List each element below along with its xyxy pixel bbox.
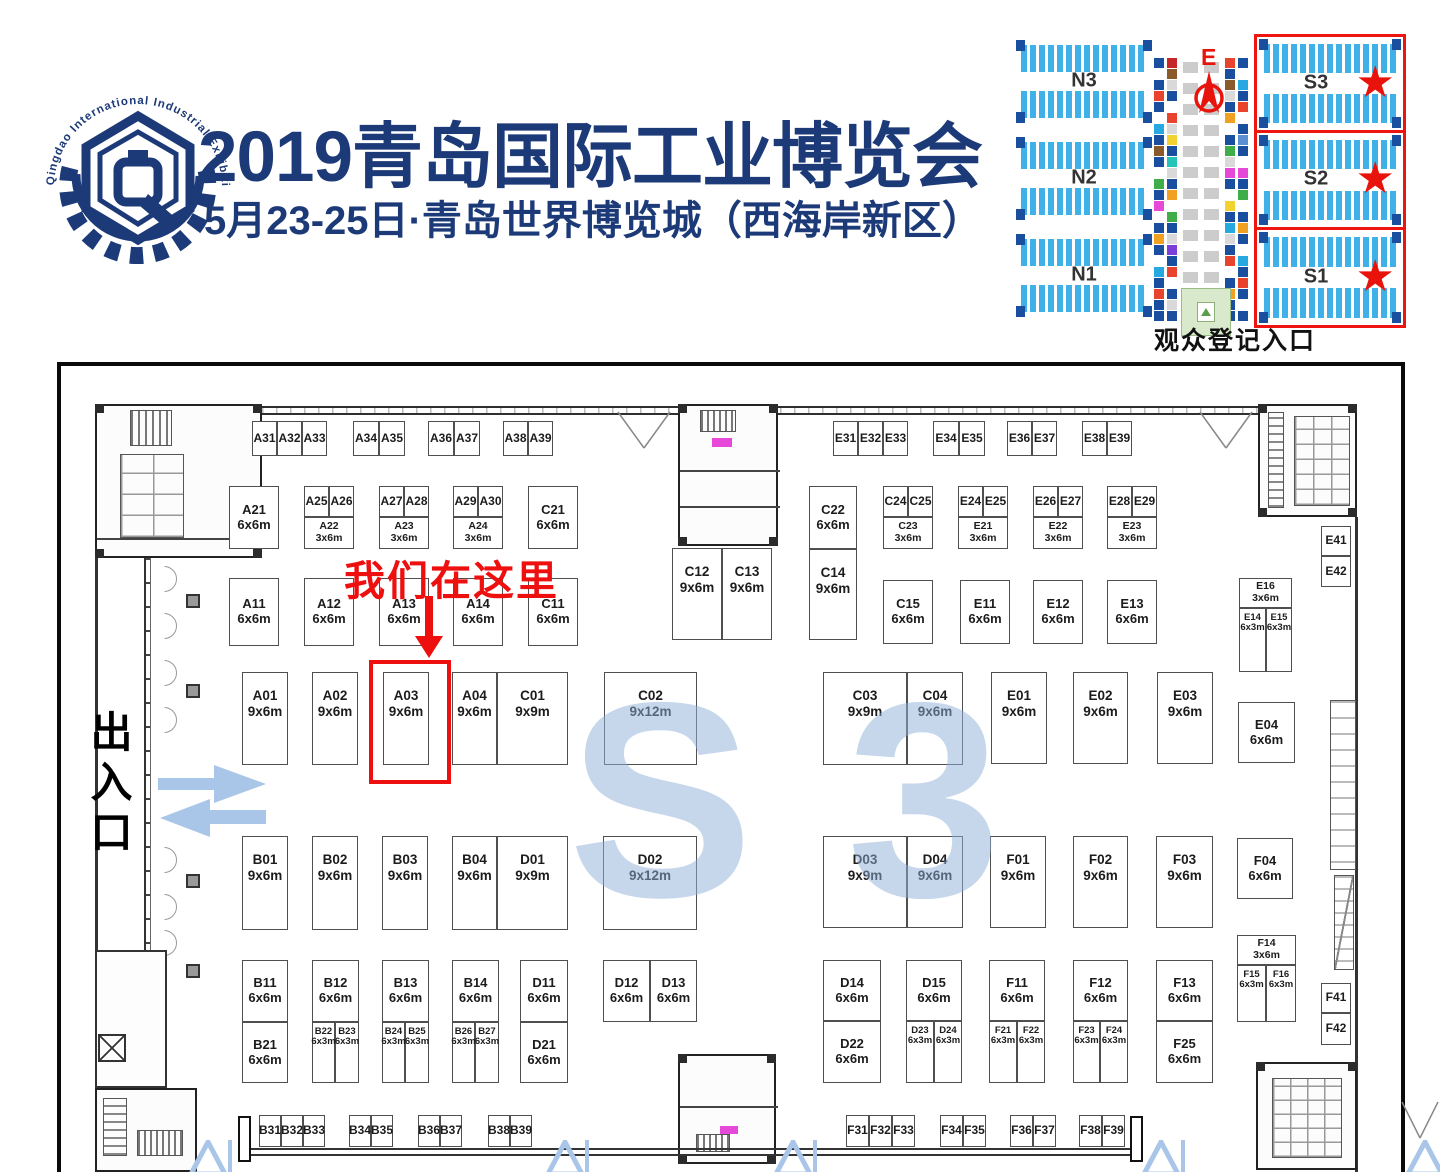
booth-B24: B246x3m [382,1022,405,1083]
hall-N1: N1 [1016,234,1152,317]
booth-E24: E24 [958,486,983,517]
stairs-icon [700,410,736,432]
booth-D22: D226x6m [823,1021,881,1083]
booth-F34: F34 [940,1115,963,1147]
booth-A31: A31 [252,421,277,456]
booth-C12: C129x6m [672,548,722,640]
booth-E12: E126x6m [1033,580,1083,644]
booth-A38: A38 [503,421,528,456]
booth-E25: E25 [983,486,1008,517]
booth-B21: B216x6m [242,1022,288,1083]
booth-E26: E26 [1033,486,1058,517]
booth-B37: B37 [440,1115,462,1147]
right-truss-window [1330,700,1356,870]
shaft-x-box [98,1034,126,1062]
booth-E31: E31 [833,421,858,456]
booth-F25: F256x6m [1156,1021,1213,1083]
hall-frame-S2: S2★ [1254,130,1406,230]
hall-N2: N2 [1016,137,1152,220]
booth-E28: E28 [1107,486,1132,517]
booth-F32: F32 [869,1115,892,1147]
building-bottom-left [95,1088,197,1172]
page-title: 2019青岛国际工业博览会 [198,100,982,202]
hall-frame-S1: S1★ [1254,227,1406,328]
booth-D23: D236x3m [906,1021,934,1083]
booth-E13: E136x6m [1107,580,1157,644]
booth-F03: F039x6m [1156,836,1213,928]
booth-E02: E029x6m [1073,672,1128,764]
booth-E35: E35 [959,421,985,456]
booth-D03: D039x9m [823,836,907,928]
service-block [712,438,732,447]
booth-C24: C24 [883,486,908,517]
booth-C03: C039x9m [823,672,907,765]
booth-C23: C233x6m [883,517,933,549]
booth-F38: F38 [1079,1115,1102,1147]
booth-C02: C029x12m [604,672,697,765]
booth-C21: C216x6m [528,486,578,549]
rooms-bottom-left [95,950,167,1088]
booth-E04: E046x6m [1238,702,1295,763]
booth-E03: E039x6m [1157,672,1213,764]
booth-D14: D146x6m [823,960,881,1021]
booth-B32: B32 [281,1115,303,1147]
booth-E38: E38 [1082,421,1107,456]
booth-A28: A28 [404,486,429,517]
booth-B23: B236x3m [335,1022,359,1083]
pillar [186,964,200,978]
booth-B14: B146x6m [452,960,499,1022]
star-icon: ★ [1356,157,1395,201]
booth-A34: A34 [353,421,379,456]
booth-E32: E32 [858,421,883,456]
exhibition-flyer: Qingdao International Industrial Exhibit… [0,0,1440,1172]
booth-C01: C019x9m [497,672,568,765]
booth-D12: D126x6m [603,960,650,1022]
booth-B36: B36 [418,1115,440,1147]
hall-label: N2 [1016,166,1152,189]
booth-E42: E42 [1321,556,1351,587]
booth-A11: A116x6m [229,578,279,646]
overview-map-caption: 观众登记入口 [1105,321,1365,357]
booth-B01: B019x6m [242,836,288,930]
booth-D02: D029x12m [603,836,697,930]
pillar [186,684,200,698]
booth-A35: A35 [379,421,405,456]
booth-F37: F37 [1033,1115,1056,1147]
exit-entrance-label: 出入口 [78,710,139,860]
booth-A37: A37 [454,421,480,456]
entrance-arrow-icon [773,1140,819,1172]
booth-F15: F156x3m [1237,965,1266,1022]
booth-C13: C139x6m [722,548,772,640]
we-are-here-label: 我们在这里 [344,547,559,607]
page-subtitle: 5月23-25日·青岛世界博览城（西海岸新区） [204,188,982,246]
stairs-icon [1268,412,1284,508]
booth-B39: B39 [510,1115,532,1147]
hall-N3: N3 [1016,40,1152,123]
booth-A29: A29 [453,486,478,517]
hall-frame-S3: S3★ [1254,34,1406,133]
door-mark-icon [1198,410,1254,450]
star-icon: ★ [1356,61,1395,105]
booth-F12: F126x6m [1073,960,1128,1021]
booth-E41: E41 [1321,526,1351,556]
wall-post [238,1116,251,1162]
booth-D21: D216x6m [520,1022,568,1083]
booth-B31: B31 [259,1115,281,1147]
hall-label: N1 [1016,263,1152,286]
service-block [720,1126,738,1134]
hall-label: N3 [1016,69,1152,92]
star-icon: ★ [1356,255,1395,299]
booth-C25: C25 [908,486,933,517]
booth-E23: E233x6m [1107,517,1157,549]
booth-D15: D156x6m [906,960,962,1021]
booth-A24: A243x6m [453,517,503,549]
booth-B38: B38 [488,1115,510,1147]
booth-E22: E223x6m [1033,517,1083,549]
booth-B26: B266x3m [452,1022,475,1083]
booth-E01: E019x6m [991,672,1047,764]
booth-B33: B33 [303,1115,325,1147]
overview-map: N3N2N1 S3★S2★S1★ E 观众登记入口 [1005,22,1415,352]
booth-F04: F046x6m [1237,838,1293,899]
booth-B13: B136x6m [382,960,429,1022]
booth-B35: B35 [371,1115,393,1147]
swap-arrows-icon [152,752,272,838]
booth-B27: B276x3m [475,1022,499,1083]
booth-E34: E34 [933,421,959,456]
booth-F31: F31 [846,1115,869,1147]
corridor-strip [1167,58,1177,321]
door-mark-icon [616,410,672,450]
booth-D01: D019x9m [497,836,568,930]
stairs-icon [130,410,172,446]
booth-E37: E37 [1032,421,1057,456]
booth-F23: F236x3m [1073,1021,1100,1083]
entrance-arrow-icon [188,1140,234,1172]
booth-A23: A233x6m [379,517,429,549]
booth-A21: A216x6m [229,486,279,549]
booth-D13: D136x6m [650,960,697,1022]
pillar [186,594,200,608]
booth-F35: F35 [963,1115,986,1147]
booth-B04: B049x6m [452,836,497,930]
booth-B22: B226x3m [312,1022,335,1083]
entrance-arrow-icon [1141,1140,1187,1172]
booth-E36: E36 [1007,421,1032,456]
left-inner-wall [144,558,151,954]
stairs-icon [137,1130,183,1156]
booth-F33: F33 [892,1115,915,1147]
door-mark-icon [1400,1100,1440,1140]
restroom-fixtures-icon [103,1098,127,1156]
inner-wall [680,470,780,472]
booth-B34: B34 [349,1115,371,1147]
inner-wall [680,506,780,508]
booth-A25: A25 [304,486,329,517]
right-ladder-wall [1334,875,1354,970]
booth-E21: E213x6m [958,517,1008,549]
booth-A39: A39 [528,421,553,456]
entrance-arrow-icon [1405,1140,1440,1172]
booth-F36: F36 [1010,1115,1033,1147]
booth-C14: C149x6m [809,549,857,640]
booth-C15: C156x6m [883,580,933,644]
booth-D04: D049x6m [907,836,963,928]
booth-E29: E29 [1132,486,1157,517]
compass-label: E [1201,44,1216,71]
here-arrow-icon [415,596,443,658]
bottom-wall [244,1148,1142,1156]
booth-E11: E116x6m [960,580,1010,644]
booth-E14: E146x3m [1239,608,1266,672]
booth-E15: E156x3m [1266,608,1292,672]
booth-A32: A32 [277,421,302,456]
booth-A04: A049x6m [452,672,497,765]
booth-F02: F029x6m [1073,836,1128,928]
booth-E27: E27 [1058,486,1083,517]
entrance-icon [1197,302,1215,322]
booth-F14: F143x6m [1237,935,1296,965]
booth-B25: B256x3m [405,1022,429,1083]
booth-F13: F136x6m [1156,960,1213,1021]
booth-E39: E39 [1107,421,1132,456]
booth-B12: B126x6m [312,960,359,1022]
booth-F22: F226x3m [1017,1021,1045,1083]
booth-F42: F42 [1321,1013,1351,1045]
restroom-fixtures-icon [120,454,184,538]
booth-F41: F41 [1321,983,1351,1013]
building-top-center [678,404,778,546]
booth-F21: F216x3m [989,1021,1017,1083]
pillar [186,874,200,888]
booth-B11: B116x6m [242,960,288,1022]
booth-F24: F246x3m [1100,1021,1128,1083]
highlighted-booth-frame [369,660,451,784]
booth-A26: A26 [329,486,354,517]
booth-F01: F019x6m [990,836,1046,928]
booth-A02: A029x6m [312,672,358,765]
booth-E33: E33 [883,421,908,456]
booth-F39: F39 [1102,1115,1125,1147]
booth-F16: F166x3m [1266,965,1296,1022]
compass-icon [1189,68,1229,120]
booth-F11: F116x6m [989,960,1045,1021]
restroom-fixtures-icon [1294,416,1350,506]
building-bottom-right [1256,1062,1357,1170]
entrance-arrow-icon [545,1140,591,1172]
booth-D11: D116x6m [520,960,568,1022]
booth-E16: E163x6m [1239,578,1292,608]
booth-C22: C226x6m [809,486,857,549]
booth-A36: A36 [428,421,454,456]
booth-D24: D246x3m [934,1021,962,1083]
booth-A22: A223x6m [304,517,354,549]
booth-B03: B039x6m [382,836,428,930]
building-top-right [1258,404,1357,517]
booth-B02: B029x6m [312,836,358,930]
booth-A30: A30 [478,486,503,517]
booth-A27: A27 [379,486,404,517]
corridor-strip [1154,58,1164,321]
inner-wall [680,1106,778,1108]
restroom-fixtures-icon [1272,1078,1342,1158]
booth-C04: C049x6m [907,672,963,765]
booth-A33: A33 [302,421,327,456]
